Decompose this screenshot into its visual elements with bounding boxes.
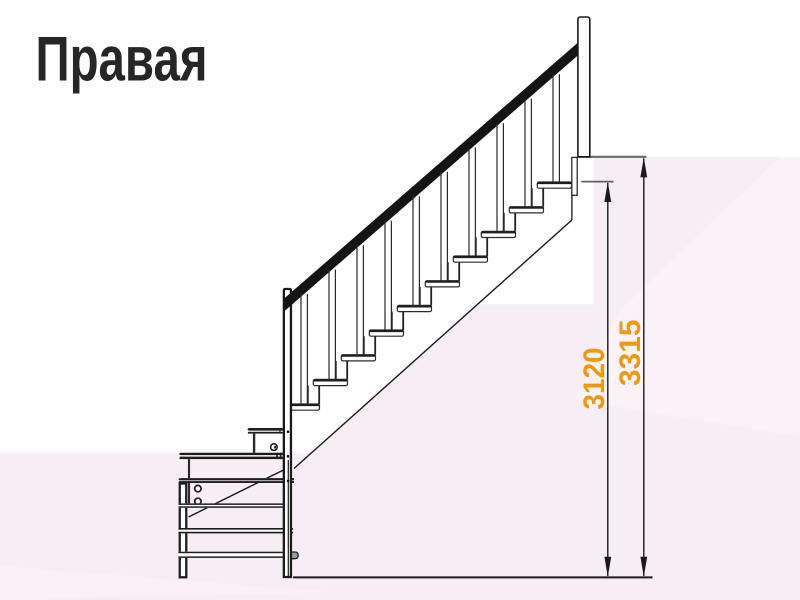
- svg-text:3315: 3315: [614, 320, 647, 387]
- svg-text:Правая: Правая: [36, 25, 208, 95]
- svg-text:3120: 3120: [578, 348, 611, 410]
